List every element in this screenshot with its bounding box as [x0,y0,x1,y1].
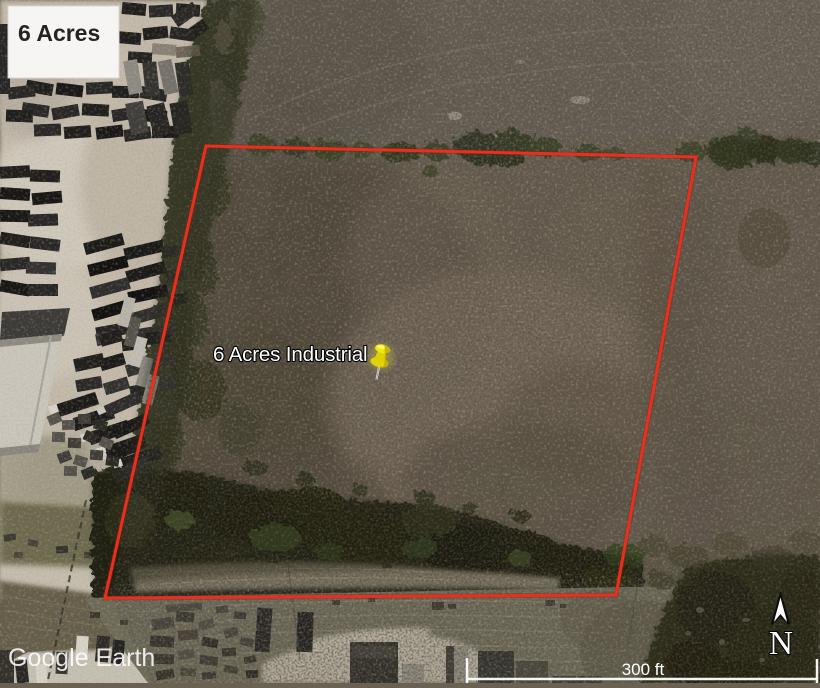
svg-text:6 Acres Industrial: 6 Acres Industrial [213,343,367,366]
svg-text:Google Earth: Google Earth [8,644,155,672]
svg-text:6 Acres: 6 Acres [18,20,100,46]
svg-text:N: N [769,625,793,662]
svg-text:300 ft: 300 ft [622,660,665,679]
